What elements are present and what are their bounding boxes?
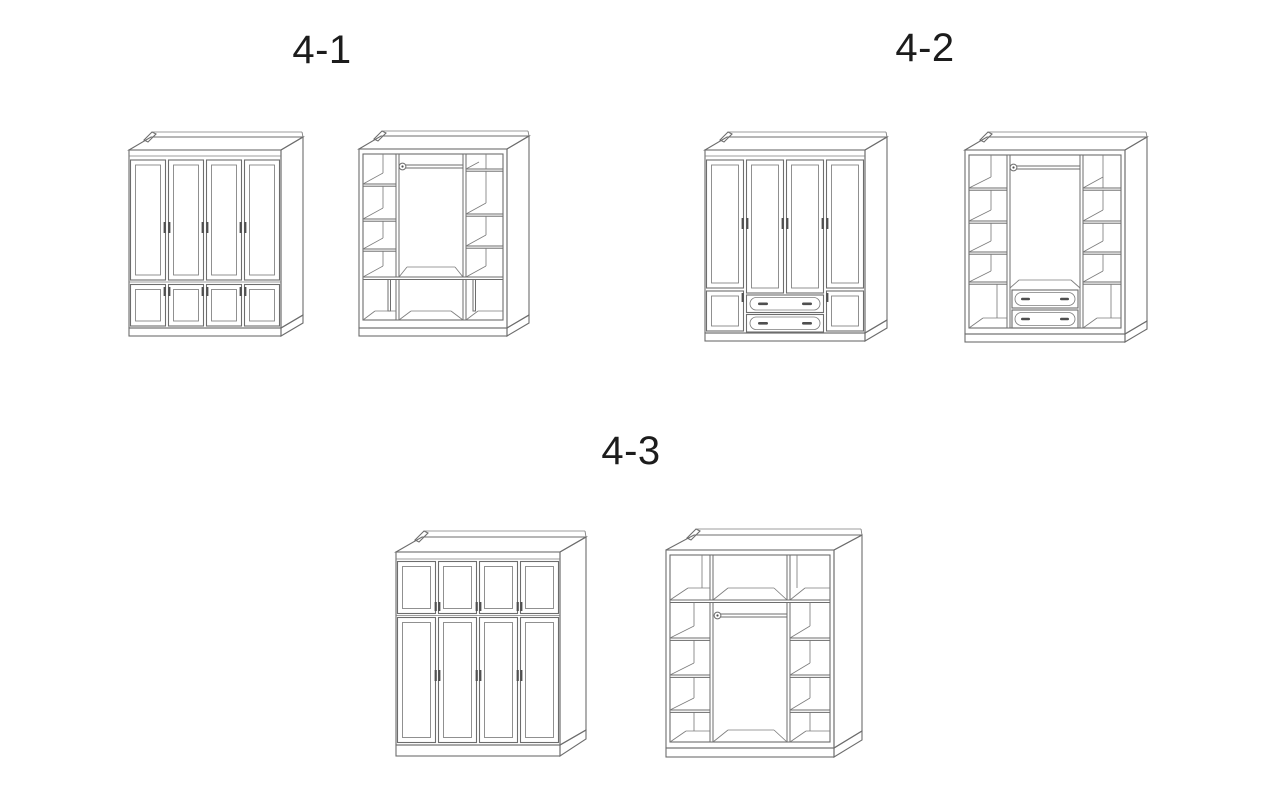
plinth bbox=[666, 748, 834, 757]
drawer bbox=[1012, 290, 1078, 308]
hanging-rod-icon bbox=[1010, 164, 1080, 171]
plinth bbox=[396, 745, 560, 756]
lower-side-doors bbox=[707, 291, 864, 331]
drawer bbox=[747, 295, 824, 313]
wardrobe-4-3-closed-drawing bbox=[392, 530, 590, 768]
wardrobe-spec-sheet: 4-1 4-2 4-3 bbox=[0, 0, 1280, 800]
group-label-4-1: 4-1 bbox=[232, 30, 412, 70]
drawer bbox=[1012, 310, 1078, 328]
tall-doors bbox=[707, 160, 864, 293]
plinth bbox=[359, 328, 507, 336]
hanging-rod-icon bbox=[714, 612, 787, 619]
left-shelf-column bbox=[363, 154, 396, 277]
wardrobe-4-2-open-drawing bbox=[961, 130, 1149, 352]
upper-doors bbox=[131, 160, 280, 280]
top-cabinet-doors bbox=[398, 562, 559, 614]
group-label-4-2: 4-2 bbox=[835, 28, 1015, 68]
tall-doors bbox=[398, 618, 559, 743]
door-handles bbox=[742, 218, 829, 229]
figure-wardrobe-4-1-open bbox=[355, 129, 533, 346]
hanging-rod-icon bbox=[399, 163, 463, 170]
lower-doors bbox=[131, 285, 280, 327]
group-label-4-3: 4-3 bbox=[541, 431, 721, 471]
right-shelf-column bbox=[466, 154, 503, 277]
plinth bbox=[129, 328, 281, 336]
drawer bbox=[747, 315, 824, 333]
door-handles bbox=[164, 222, 247, 233]
bottom-compartments bbox=[363, 280, 503, 321]
right-shelf-column bbox=[790, 603, 830, 743]
wardrobe-4-1-open-drawing bbox=[355, 129, 533, 346]
figure-wardrobe-4-3-closed bbox=[392, 530, 590, 768]
figure-wardrobe-4-2-open bbox=[961, 130, 1149, 352]
figure-wardrobe-4-1-closed bbox=[125, 130, 305, 346]
left-shelf-column bbox=[969, 155, 1007, 328]
figure-wardrobe-4-2-closed bbox=[701, 130, 889, 351]
wardrobe-4-1-closed-drawing bbox=[125, 130, 305, 346]
plinth bbox=[705, 333, 865, 341]
wardrobe-4-3-open-drawing bbox=[662, 528, 867, 770]
left-shelf-column bbox=[670, 603, 710, 743]
right-shelf-column bbox=[1083, 155, 1121, 328]
plinth bbox=[965, 334, 1125, 342]
figure-wardrobe-4-3-open bbox=[662, 528, 867, 770]
wardrobe-4-2-closed-drawing bbox=[701, 130, 889, 351]
top-shelf-band bbox=[670, 555, 830, 603]
